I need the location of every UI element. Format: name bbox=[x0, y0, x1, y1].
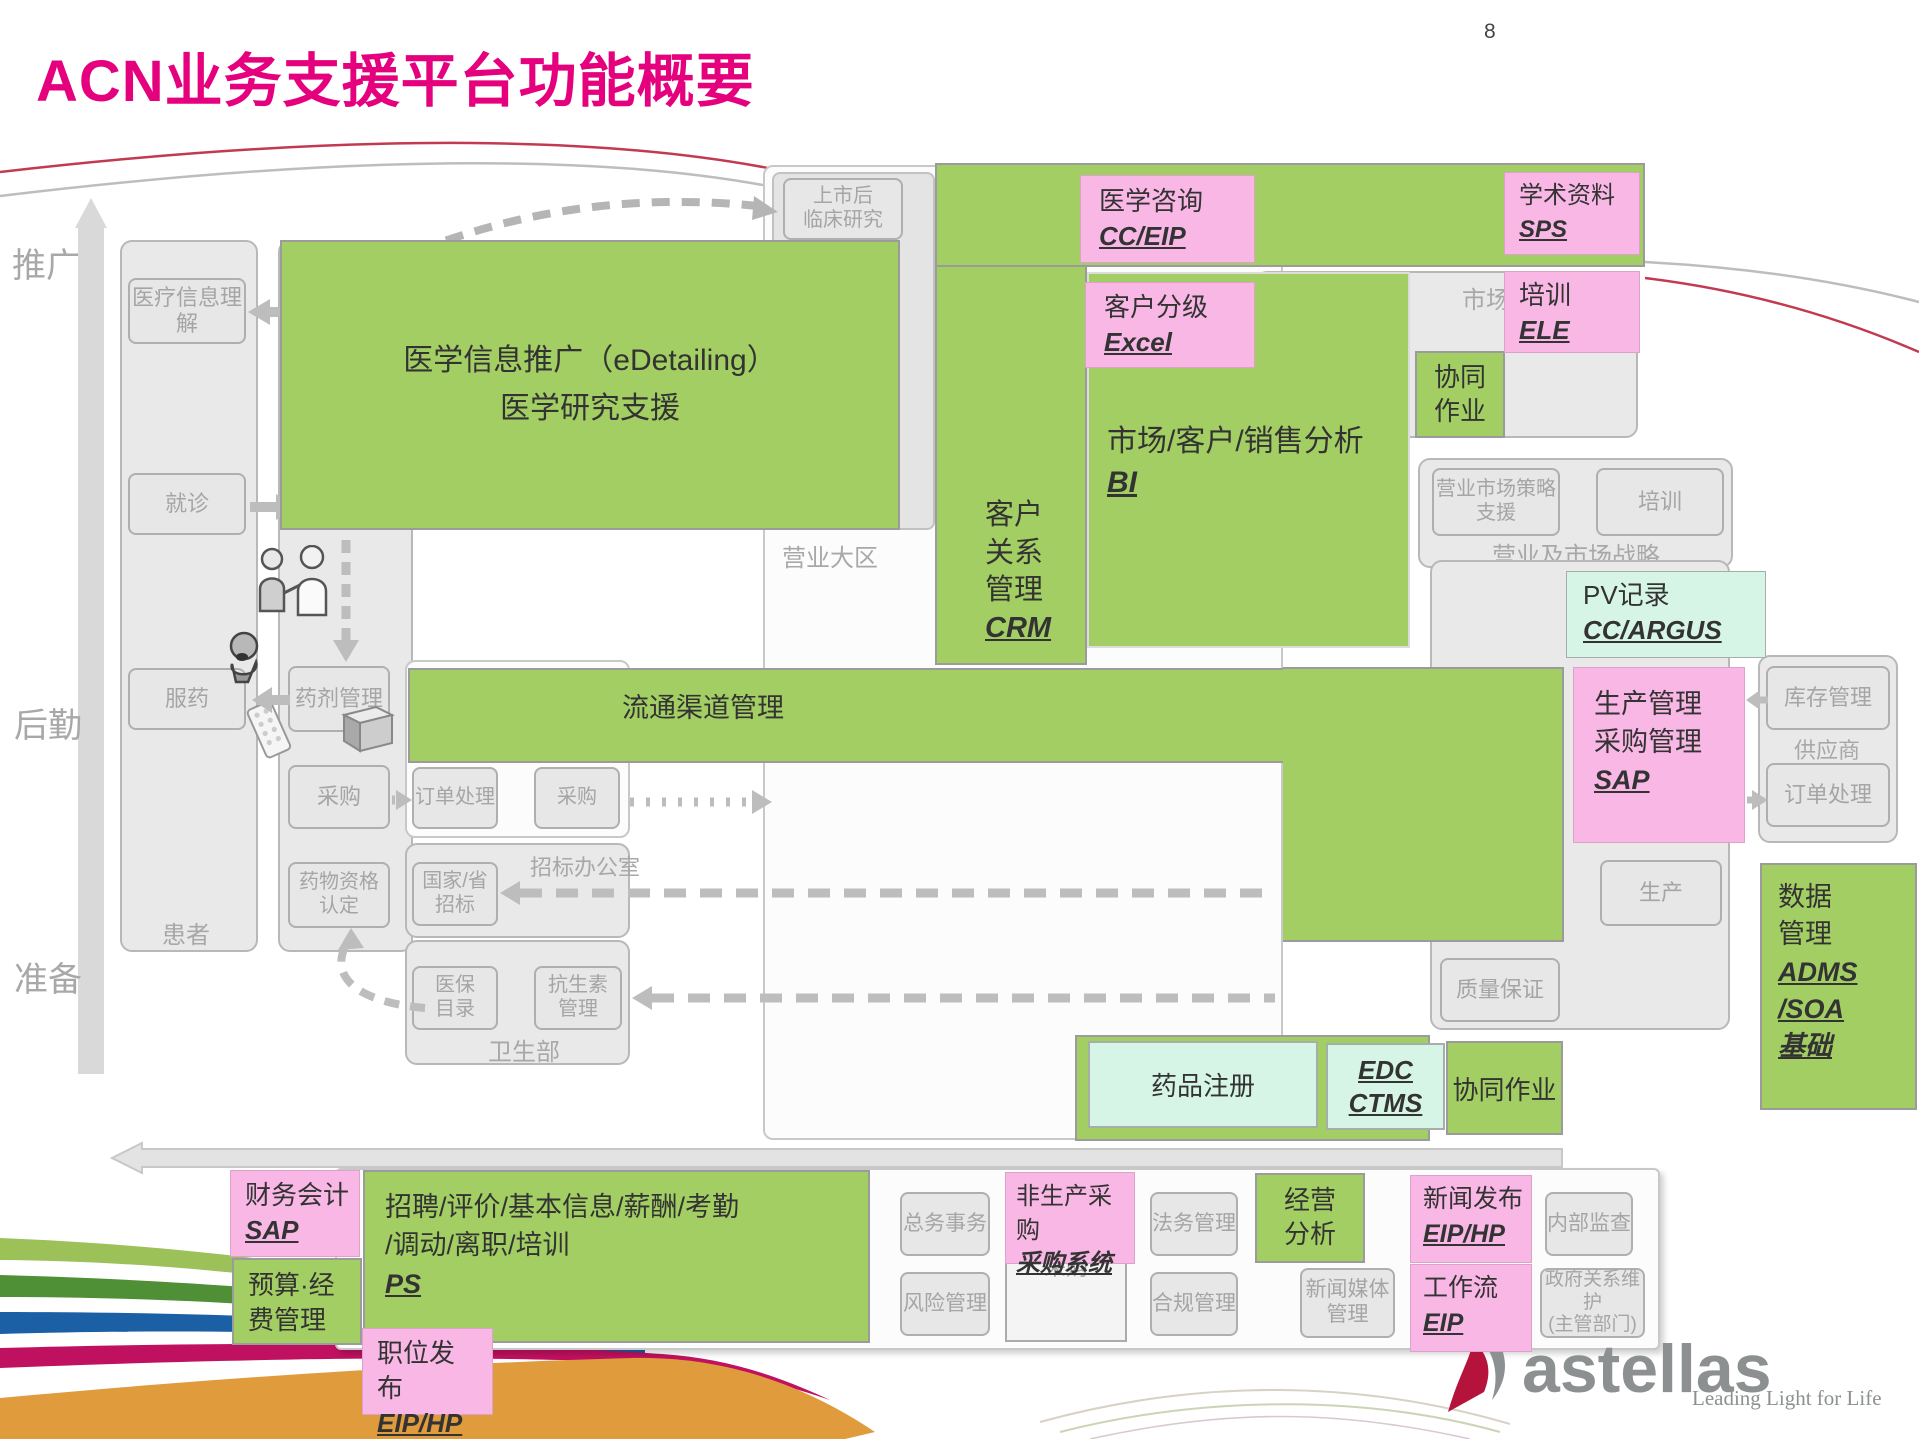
edc-ctms-box: EDCCTMS bbox=[1326, 1043, 1445, 1130]
slide-title: ACN业务支援平台功能概要 bbox=[36, 34, 755, 118]
medical-info-understanding-box: 医疗信息理解 bbox=[128, 278, 246, 344]
supplier-label: 供应商 bbox=[1794, 733, 1860, 765]
sales-region-label: 营业大区 bbox=[782, 538, 878, 573]
insurance-list-box: 医保目录 bbox=[412, 966, 498, 1030]
page-number: 8 bbox=[1484, 20, 1496, 44]
lane-arrow-tip bbox=[75, 198, 107, 228]
quality-assurance-box: 质量保证 bbox=[1440, 958, 1560, 1022]
academic-material-box: 学术资料SPS bbox=[1504, 172, 1640, 255]
health-ministry-label: 卫生部 bbox=[488, 1032, 560, 1067]
market-container-label: 市场 bbox=[1462, 280, 1510, 315]
purchase-box: 采购 bbox=[534, 767, 620, 829]
order-processing-box: 订单处理 bbox=[412, 767, 498, 829]
budget-box: 预算·经费管理 bbox=[232, 1258, 362, 1345]
pharmacy-mgmt-box: 药剂管理 bbox=[288, 666, 390, 732]
bidding-office-label: 招标办公室 bbox=[530, 850, 640, 882]
finance-sap-box: 财务会计SAP bbox=[230, 1170, 360, 1257]
patient-container-label: 患者 bbox=[162, 915, 210, 950]
training-ele-box: 培训ELE bbox=[1504, 271, 1640, 353]
collaboration-top-box: 协同作业 bbox=[1415, 351, 1505, 438]
medication-box: 服药 bbox=[128, 668, 246, 730]
slide: ACN业务支援平台功能概要 8 推广 后勤 准备 医疗信息理解 就诊 服药 患者… bbox=[0, 0, 1919, 1439]
nonprod-purchase-box: 非生产采购采购系统 bbox=[1005, 1172, 1135, 1264]
crm-box: 客户关系管理CRM bbox=[935, 265, 1087, 665]
job-post-box: 职位发 布EIP/HP bbox=[362, 1328, 493, 1415]
compliance-box: 合规管理 bbox=[1150, 1272, 1238, 1336]
customer-grading-box: 客户分级Excel bbox=[1085, 282, 1255, 368]
sap-production-box: 生产管理采购管理SAP bbox=[1573, 667, 1745, 843]
news-media-box: 新闻媒体管理 bbox=[1300, 1268, 1395, 1338]
lane-arrow-bar bbox=[78, 227, 104, 1074]
business-analysis-box: 经营分析 bbox=[1255, 1173, 1365, 1263]
hospital-purchase-box: 采购 bbox=[288, 765, 390, 829]
national-bidding-box: 国家/省招标 bbox=[412, 862, 498, 926]
hr-ps-box: 招聘/评价/基本信息/薪酬/考勤/调动/离职/培训PS bbox=[363, 1170, 870, 1343]
patient-container bbox=[120, 240, 258, 952]
distribution-right-block bbox=[1283, 667, 1564, 942]
drug-registration-box: 药品注册 bbox=[1088, 1041, 1318, 1128]
antibiotic-mgmt-box: 抗生素管理 bbox=[534, 966, 622, 1030]
lane-label-preparation: 准备 bbox=[14, 952, 82, 1001]
inventory-mgmt-box: 库存管理 bbox=[1766, 666, 1890, 730]
supplier-order-box: 订单处理 bbox=[1766, 763, 1890, 827]
edetailing-box: 医学信息推广（eDetailing）医学研究支援 bbox=[280, 240, 900, 530]
production-box: 生产 bbox=[1600, 860, 1722, 926]
general-affairs-box: 总务事务 bbox=[900, 1192, 990, 1256]
drug-qualification-box: 药物资格认定 bbox=[288, 862, 390, 928]
medical-consult-box: 医学咨询CC/EIP bbox=[1080, 175, 1255, 263]
legal-box: 法务管理 bbox=[1150, 1192, 1238, 1256]
visit-box: 就诊 bbox=[128, 473, 246, 535]
strategy-training-box: 培训 bbox=[1596, 468, 1724, 536]
post-market-study-box: 上市后临床研究 bbox=[783, 178, 903, 240]
pv-record-box: PV记录CC/ARGUS bbox=[1566, 571, 1766, 658]
astellas-tagline: Leading Light for Life bbox=[1692, 1386, 1882, 1411]
data-mgmt-box: 数据管理 ADMS/SOA基础 bbox=[1760, 863, 1917, 1110]
lane-label-logistics: 后勤 bbox=[14, 698, 82, 747]
gov-relations-box: 政府关系维护(主管部门) bbox=[1540, 1268, 1645, 1338]
news-release-box: 新闻发布EIP/HP bbox=[1410, 1175, 1532, 1263]
lane-label-promotion: 推广 bbox=[12, 238, 80, 287]
risk-mgmt-box: 风险管理 bbox=[900, 1272, 990, 1336]
sales-market-strategy-support-box: 营业市场策略支援 bbox=[1432, 468, 1560, 536]
internal-audit-box: 内部监查 bbox=[1545, 1192, 1633, 1256]
workflow-box: 工作流EIP bbox=[1410, 1264, 1532, 1352]
collaboration-bottom-box: 协同作业 bbox=[1446, 1041, 1563, 1135]
